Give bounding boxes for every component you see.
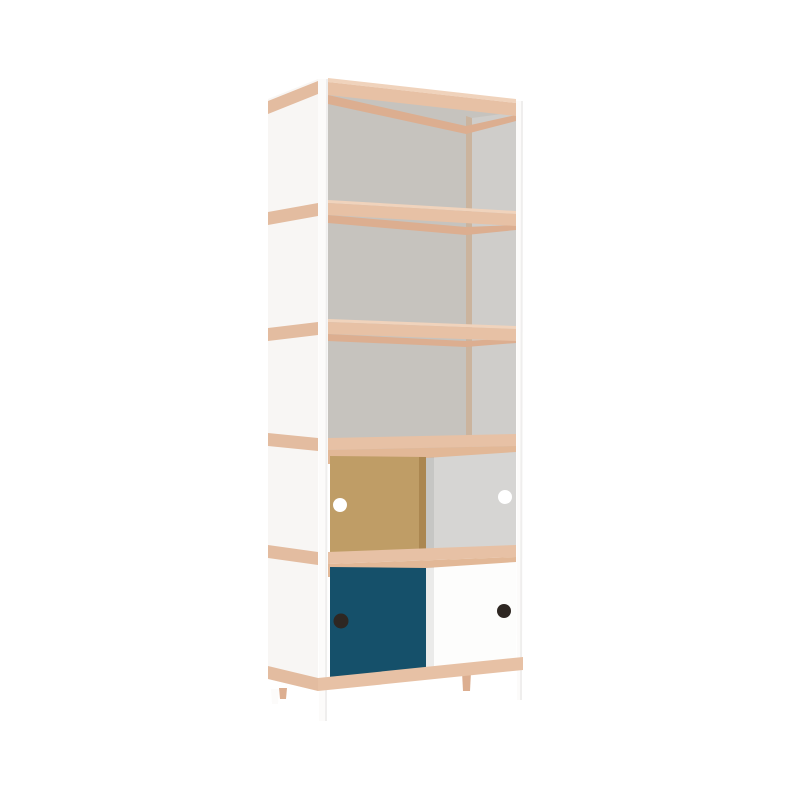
bottom-door-bay (330, 562, 516, 677)
teal-door-finger-hole (334, 614, 349, 629)
back-left-leg (271, 689, 279, 704)
white-door-finger-hole (497, 604, 511, 618)
interior-right-wall (472, 112, 516, 452)
shelving-unit-render (0, 0, 800, 800)
middle-door-bay (328, 446, 516, 557)
left-side-panel-face (268, 79, 318, 691)
open-shelf-interior (328, 93, 516, 452)
interior-back-corner-strip (466, 116, 472, 452)
grey-door-finger-hole (498, 490, 512, 504)
grey-sliding-door (426, 452, 516, 557)
back-left-leg-wood (279, 688, 287, 699)
product-image-canvas (0, 0, 800, 800)
plywood-door-edge (419, 457, 426, 557)
white-door-shadow-edge (426, 567, 434, 670)
legs (271, 688, 287, 704)
grey-door-shadow-edge (426, 457, 434, 557)
plywood-door-finger-hole (333, 498, 347, 512)
left-side-panel (268, 79, 318, 691)
